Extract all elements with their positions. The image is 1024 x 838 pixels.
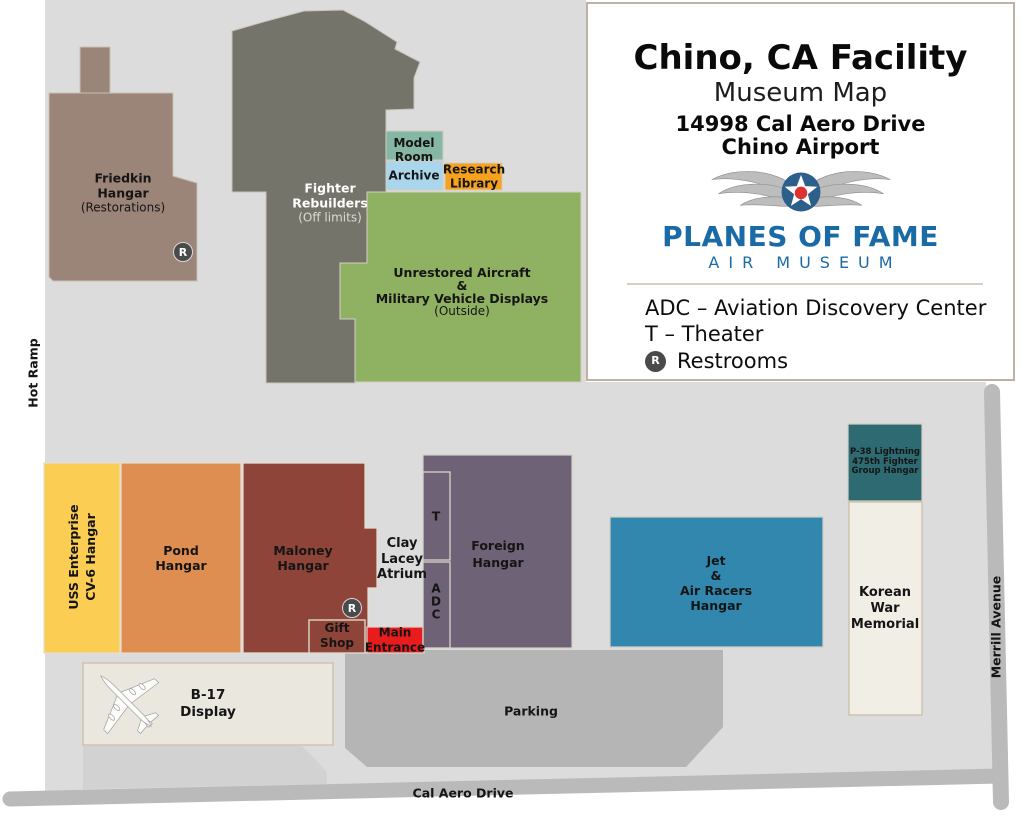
panel-divider [627,283,983,285]
legend-theater: T – Theater [645,322,1013,346]
model-room-label: Model Room [393,136,434,164]
restroom-icon-maloney: R [342,598,362,618]
theater-room-label: T [432,509,441,524]
restroom-letter: R [179,246,187,259]
legend-restrooms: R Restrooms [645,349,1013,373]
clay-lacey-atrium-label: Clay Lacey Atrium [377,536,427,583]
map-subtitle: Museum Map [588,79,1013,108]
main-entrance-label: Main Entrance [365,626,425,655]
b17-display-label: B-17 Display [180,687,236,721]
restroom-icon-friedkin: R [173,242,193,262]
korean-war-memorial-label: Korean War Memorial [851,585,919,633]
fighter-rebuilders-label: Fighter Rebuilders (Off limits) [292,181,368,226]
legend-restrooms-text: Restrooms [677,349,788,373]
uss-enterprise-hangar-label: USS Enterprise CV-6 Hangar [65,504,99,609]
restroom-icon-legend: R [645,351,666,372]
page-title: Chino, CA Facility [588,38,1013,78]
info-panel: Chino, CA Facility Museum Map 14998 Cal … [586,2,1015,381]
jet-air-racers-hangar-label: Jet & Air Racers Hangar [680,553,752,613]
hot-ramp-label: Hot Ramp [26,338,41,407]
research-library-label: Research Library [443,164,505,191]
maloney-hangar-label: Maloney Hangar [273,543,332,573]
gift-shop-label: Gift Shop [320,621,354,651]
driveway-area [83,746,327,789]
museum-map: Friedkin Hangar (Restorations) Fighter R… [0,0,1024,838]
unrestored-aircraft-area-label: Unrestored Aircraft & Military Vehicle D… [376,266,549,318]
p38-hangar-label: P-38 Lightning 475th Fighter Group Hanga… [850,448,920,477]
brand-subtitle: AIR MUSEUM [588,254,1013,272]
friedkin-hangar-chimney [80,47,110,93]
brand-name: PLANES OF FAME [588,222,1013,251]
archive-label: Archive [389,169,440,184]
friedkin-hangar-label: Friedkin Hangar (Restorations) [81,171,165,216]
restroom-letter: R [651,349,659,373]
parking-label: Parking [504,704,558,719]
planes-of-fame-wings-logo [588,166,1013,222]
cal-aero-drive-label: Cal Aero Drive [413,786,514,801]
restroom-letter: R [348,602,356,615]
adc-room-label: A D C [431,583,441,622]
address-line-1: 14998 Cal Aero Drive [588,113,1013,136]
pond-hangar-label: Pond Hangar [155,543,206,573]
address-line-2: Chino Airport [588,136,1013,159]
legend: ADC – Aviation Discovery Center T – Thea… [645,296,1013,373]
merrill-avenue-label: Merrill Avenue [989,576,1004,679]
legend-adc: ADC – Aviation Discovery Center [645,296,1013,320]
roundel-dot-icon [794,187,807,200]
foreign-hangar-label: Foreign Hangar [471,537,524,571]
